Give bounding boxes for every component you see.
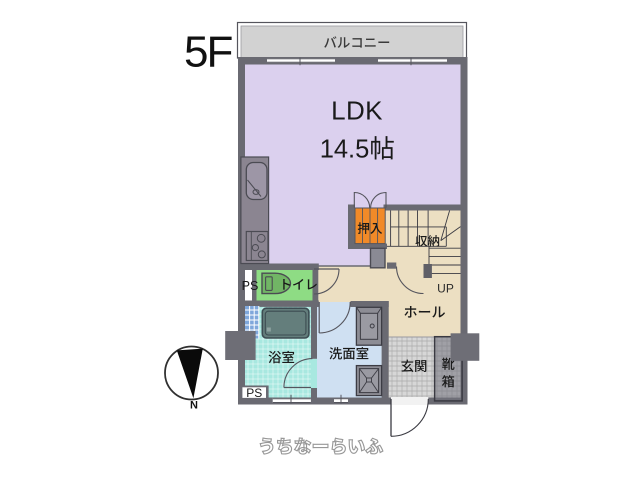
svg-text:UP: UP — [437, 282, 454, 296]
svg-text:PS: PS — [246, 386, 262, 400]
svg-text:LDK: LDK — [331, 96, 383, 126]
svg-text:N: N — [190, 400, 198, 412]
svg-text:5F: 5F — [184, 28, 232, 77]
svg-text:PS: PS — [242, 279, 259, 293]
svg-text:14.5: 14.5 — [320, 135, 370, 163]
